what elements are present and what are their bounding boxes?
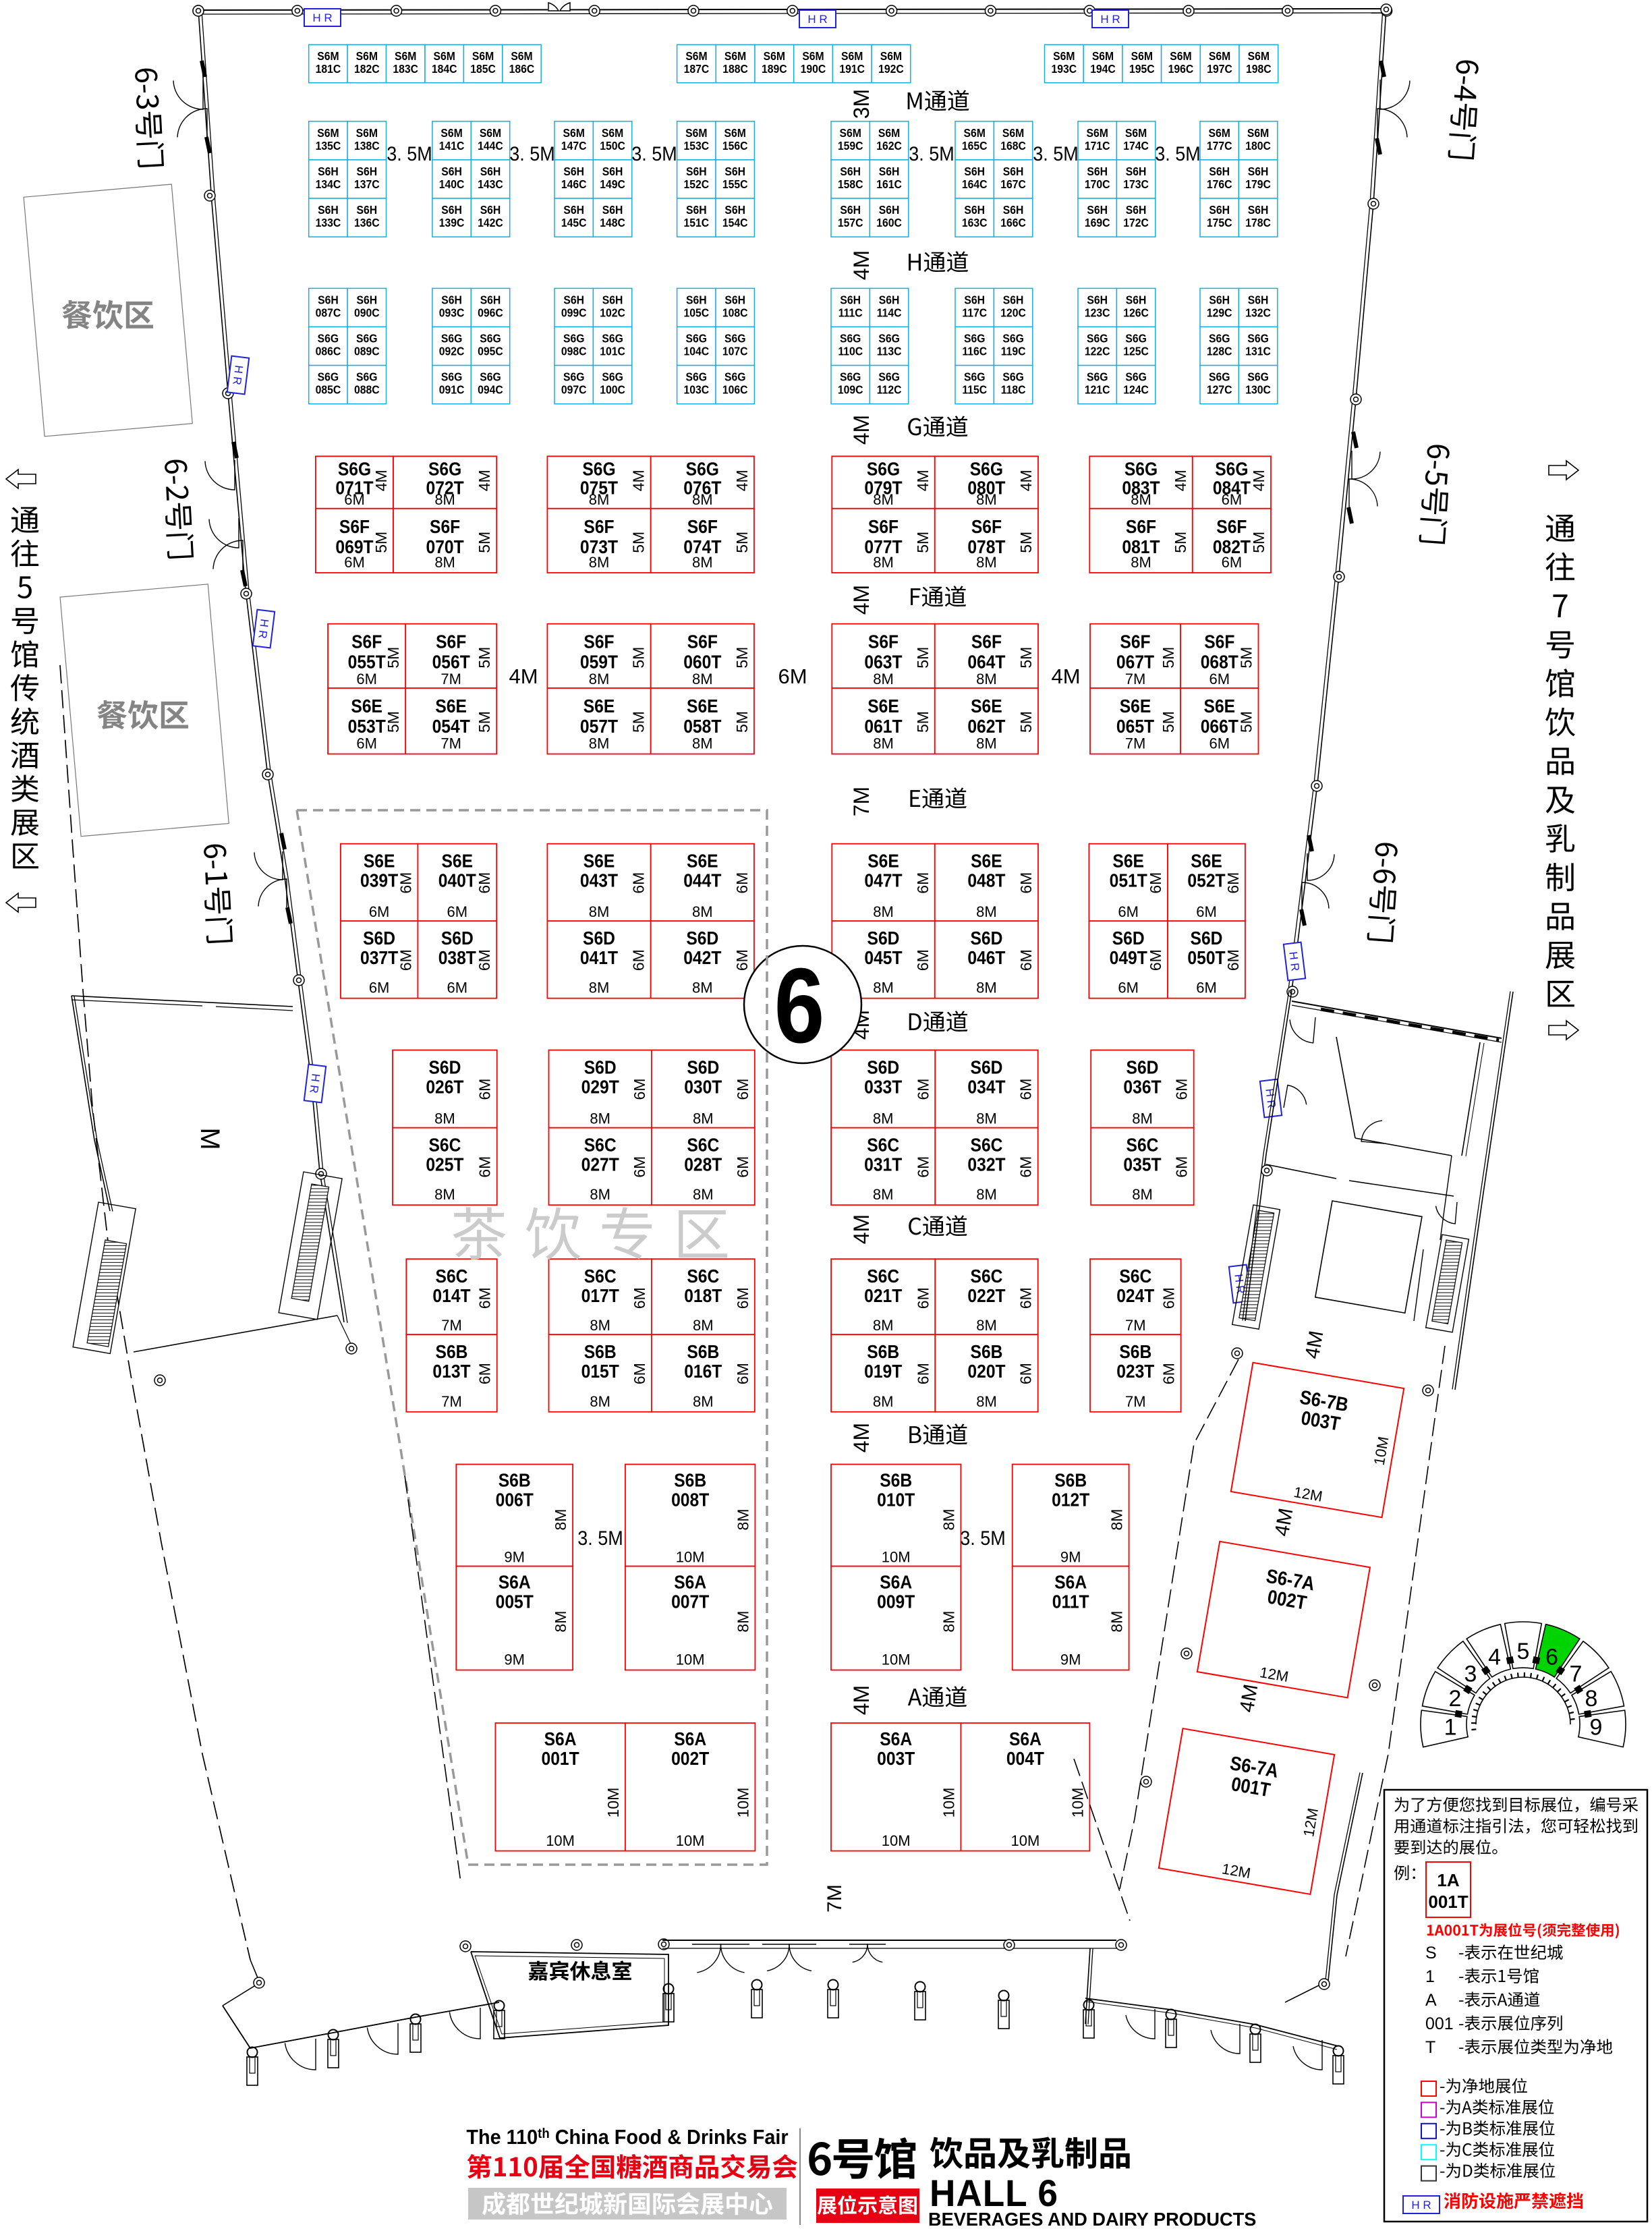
svg-text:S6E: S6E [687,850,718,872]
svg-text:8M: 8M [693,1317,714,1334]
svg-text:S6M: S6M [317,126,339,140]
svg-text:100C: 100C [600,383,625,397]
svg-text:8M: 8M [940,1509,957,1531]
svg-text:8M: 8M [589,554,610,571]
svg-text:S6H: S6H [602,203,623,217]
svg-text:146C: 146C [561,177,587,191]
svg-text:S6D: S6D [363,928,395,949]
svg-text:093C: 093C [439,306,465,320]
svg-text:190C: 190C [801,62,826,76]
svg-text:8M: 8M [873,491,894,508]
svg-text:S6H: S6H [480,293,501,307]
svg-text:S6D: S6D [584,1056,617,1078]
svg-text:6M: 6M [356,671,377,687]
svg-text:S6B: S6B [674,1469,706,1491]
svg-text:173C: 173C [1123,177,1149,191]
svg-text:S6H: S6H [563,203,584,217]
svg-text:The 110th China Food & Drinks: The 110th China Food & Drinks Fair [466,2126,788,2149]
svg-text:8M: 8M [589,903,610,920]
svg-text:7M: 7M [849,787,874,816]
svg-text:8M: 8M [1131,491,1151,508]
svg-text:S6H: S6H [1248,203,1269,217]
svg-text:10M: 10M [882,1651,911,1668]
svg-text:S6F: S6F [436,631,466,652]
svg-text:S6G: S6G [356,370,377,384]
svg-text:133C: 133C [316,216,341,229]
svg-text:5M: 5M [1160,647,1177,669]
svg-text:S6F: S6F [1216,515,1247,537]
svg-text:S6B: S6B [584,1341,617,1363]
svg-text:S6H: S6H [357,203,378,217]
svg-text:195C: 195C [1129,62,1155,76]
svg-text:8M: 8M [940,1611,957,1633]
svg-text:1: 1 [1425,1967,1435,1986]
svg-text:S6E: S6E [364,850,395,872]
svg-text:4M: 4M [849,250,874,280]
svg-text:8M: 8M [976,903,997,920]
svg-text:4M: 4M [849,1214,874,1244]
svg-text:068T: 068T [1201,651,1238,673]
svg-text:S6G: S6G [1247,370,1268,384]
svg-text:8M: 8M [1108,1509,1126,1531]
svg-text:S6H: S6H [879,165,900,178]
svg-text:8M: 8M [590,1186,610,1203]
svg-text:116C: 116C [962,345,987,358]
svg-text:S6D: S6D [970,928,1002,949]
svg-text:144C: 144C [478,139,503,152]
svg-text:H R: H R [256,618,270,639]
svg-text:099C: 099C [561,306,587,320]
svg-text:128C: 128C [1207,345,1232,358]
svg-text:S6M: S6M [685,49,707,63]
svg-text:6M: 6M [631,1287,648,1309]
svg-text:123C: 123C [1085,306,1110,320]
svg-text:6M: 6M [914,949,932,971]
svg-text:S6A: S6A [880,1571,912,1593]
svg-text:S6M: S6M [356,49,378,63]
svg-text:5M: 5M [384,711,402,733]
svg-text:6M: 6M [1173,1079,1191,1100]
svg-text:8M: 8M [1132,1186,1153,1203]
svg-text:106C: 106C [722,383,748,397]
svg-text:4M: 4M [849,1685,874,1715]
svg-text:S6H: S6H [724,293,745,307]
svg-text:5M: 5M [372,532,390,553]
svg-text:S6E: S6E [971,850,1002,872]
svg-text:5M: 5M [476,647,493,669]
svg-text:8M: 8M [976,1393,997,1410]
svg-text:154C: 154C [722,216,748,229]
svg-text:158C: 158C [838,177,863,191]
svg-text:5M: 5M [476,532,493,553]
svg-text:196C: 196C [1168,62,1194,76]
svg-text:8M: 8M [589,671,610,687]
svg-text:10M: 10M [734,1788,751,1818]
svg-text:8M: 8M [976,554,997,571]
svg-text:S6G: S6G [602,332,623,345]
svg-text:S6C: S6C [867,1266,899,1287]
svg-text:S6H: S6H [686,165,707,178]
svg-text:121C: 121C [1085,383,1110,397]
svg-text:094C: 094C [478,383,503,397]
svg-text:8M: 8M [693,1110,714,1127]
svg-text:055T: 055T [348,651,386,673]
svg-text:S6H: S6H [964,203,985,217]
svg-text:S6F: S6F [687,631,718,652]
svg-text:007T: 007T [671,1591,709,1612]
svg-text:174C: 174C [1123,139,1149,152]
svg-text:018T: 018T [684,1285,722,1307]
svg-text:S6E: S6E [1191,850,1222,872]
svg-text:7M: 7M [441,1393,462,1410]
svg-text:S6H: S6H [840,165,861,178]
svg-text:143C: 143C [478,177,503,191]
svg-text:S6E: S6E [435,696,467,717]
svg-text:064T: 064T [967,651,1005,673]
svg-text:8M: 8M [434,1186,455,1203]
svg-text:112C: 112C [877,383,902,397]
svg-text:6M: 6M [1017,872,1035,894]
svg-text:150C: 150C [600,139,625,152]
svg-text:8M: 8M [976,1186,997,1203]
svg-text:145C: 145C [561,216,587,229]
svg-text:8M: 8M [734,1611,751,1633]
svg-text:3. 5M: 3. 5M [1033,143,1078,166]
svg-text:3M: 3M [849,89,874,119]
svg-text:6M: 6M [1017,949,1035,971]
svg-text:10M: 10M [1069,1788,1086,1818]
svg-text:131C: 131C [1245,345,1271,358]
svg-text:3. 5M: 3. 5M [577,1527,623,1550]
svg-text:S6H: S6H [1248,165,1269,178]
svg-text:S6G: S6G [602,370,623,384]
svg-text:8M: 8M [976,735,997,752]
svg-text:3. 5M: 3. 5M [960,1527,1005,1550]
svg-text:S6E: S6E [442,850,474,872]
svg-text:S6C: S6C [687,1134,719,1156]
svg-text:011T: 011T [1052,1591,1089,1612]
svg-text:115C: 115C [962,383,987,397]
svg-text:8M: 8M [976,1317,997,1334]
svg-text:S6M: S6M [395,49,416,63]
svg-text:4M: 4M [1017,470,1035,491]
svg-text:162C: 162C [876,139,902,152]
svg-text:S6B: S6B [867,1341,899,1363]
svg-text:S6D: S6D [441,928,474,949]
svg-text:014T: 014T [432,1285,470,1307]
svg-text:139C: 139C [439,216,465,229]
svg-text:054T: 054T [432,716,470,737]
svg-text:S6F: S6F [583,631,614,652]
svg-text:6: 6 [774,947,825,1066]
svg-text:4M: 4M [1051,665,1080,688]
svg-text:6M: 6M [476,1287,494,1309]
svg-text:1A: 1A [1437,1870,1459,1890]
svg-text:063T: 063T [864,651,902,673]
svg-text:S6M: S6M [840,126,861,140]
svg-text:S6F: S6F [1204,631,1234,652]
svg-text:5M: 5M [914,647,932,669]
svg-text:10M: 10M [604,1788,622,1818]
svg-text:8M: 8M [552,1611,569,1633]
svg-text:6M: 6M [914,1079,932,1100]
svg-text:S6H: S6H [964,165,985,178]
svg-text:030T: 030T [684,1076,722,1098]
svg-text:7M: 7M [440,735,461,752]
svg-text:BEVERAGES AND DAIRY PRODUCTS: BEVERAGES AND DAIRY PRODUCTS [928,2209,1256,2230]
svg-text:024T: 024T [1116,1285,1154,1307]
svg-text:6M: 6M [1222,491,1243,508]
svg-text:S6M: S6M [841,49,863,63]
svg-text:3. 5M: 3. 5M [909,143,954,166]
svg-text:5M: 5M [1238,711,1255,733]
svg-text:042T: 042T [683,947,721,969]
svg-text:6M: 6M [734,1156,751,1178]
svg-text:8M: 8M [873,671,894,687]
svg-text:6M: 6M [1118,903,1139,920]
svg-text:5M: 5M [733,532,751,553]
svg-text:6M: 6M [476,1363,494,1384]
svg-text:H R: H R [312,11,332,24]
svg-text:096C: 096C [478,306,503,320]
svg-text:5M: 5M [1250,532,1268,553]
svg-text:S6F: S6F [687,515,718,537]
svg-text:T: T [1425,2038,1435,2057]
svg-text:S6C: S6C [584,1266,617,1287]
svg-text:S6F: S6F [971,515,1002,537]
svg-text:8M: 8M [589,735,610,752]
svg-text:S6G: S6G [724,370,745,384]
svg-text:S6F: S6F [868,631,899,652]
svg-text:S6C: S6C [867,1134,899,1156]
svg-text:091C: 091C [439,383,465,397]
svg-text:8M: 8M [693,1186,714,1203]
svg-text:S6F: S6F [430,515,460,537]
svg-text:166C: 166C [1000,216,1026,229]
svg-text:S6G: S6G [964,370,985,384]
svg-text:5M: 5M [733,647,751,669]
svg-text:6M: 6M [631,1156,648,1178]
svg-text:9: 9 [1589,1715,1602,1741]
svg-text:049T: 049T [1110,947,1147,969]
svg-text:4: 4 [1488,1645,1501,1670]
svg-text:001T: 001T [1428,1892,1468,1912]
svg-text:6M: 6M [1209,735,1230,752]
svg-text:S6H: S6H [441,293,462,307]
svg-text:S6H: S6H [1087,165,1108,178]
svg-text:6M: 6M [1017,1363,1035,1384]
svg-text:S6G: S6G [318,370,339,384]
svg-text:5M: 5M [1238,647,1255,669]
svg-text:S6F: S6F [868,515,899,537]
svg-text:156C: 156C [722,139,748,152]
svg-text:S6H: S6H [318,203,339,217]
svg-text:S6C: S6C [1119,1266,1151,1287]
svg-text:7M: 7M [1125,735,1146,752]
svg-text:3. 5M: 3. 5M [387,143,432,166]
svg-text:8M: 8M [692,671,713,687]
svg-text:036T: 036T [1123,1076,1161,1098]
svg-text:S6H: S6H [840,203,861,217]
svg-text:7M: 7M [441,1317,462,1334]
svg-text:157C: 157C [838,216,863,229]
svg-text:148C: 148C [600,216,625,229]
svg-text:8M: 8M [692,980,713,996]
svg-text:147C: 147C [561,139,587,152]
svg-text:6M: 6M [356,735,377,752]
svg-text:8M: 8M [873,1110,894,1127]
svg-text:2: 2 [1448,1686,1461,1712]
svg-text:037T: 037T [360,947,398,969]
svg-text:6M: 6M [1147,949,1164,971]
svg-text:S6G: S6G [964,332,985,345]
svg-text:S6G: S6G [1002,370,1023,384]
svg-text:S6H: S6H [1087,293,1108,307]
svg-text:6M: 6M [1017,1079,1035,1100]
svg-text:S6G: S6G [1002,332,1023,345]
svg-text:S6G: S6G [1125,332,1146,345]
svg-text:102C: 102C [600,306,625,320]
svg-text:10M: 10M [882,1549,911,1566]
svg-text:6M: 6M [476,949,493,971]
svg-text:5M: 5M [1017,711,1035,733]
svg-text:S6H: S6H [441,165,462,178]
svg-text:095C: 095C [478,345,503,358]
svg-text:S6M: S6M [1131,49,1153,63]
svg-text:114C: 114C [877,306,902,320]
svg-text:5M: 5M [630,532,648,553]
svg-text:8M: 8M [873,1393,894,1410]
svg-text:129C: 129C [1207,306,1232,320]
svg-text:193C: 193C [1051,62,1077,76]
svg-text:7M: 7M [1125,671,1146,687]
svg-text:S6H: S6H [1126,165,1147,178]
svg-text:S6H: S6H [686,293,707,307]
svg-text:126C: 126C [1123,306,1149,320]
svg-text:S6G: S6G [840,332,861,345]
svg-text:152C: 152C [683,177,709,191]
svg-text:010T: 010T [877,1489,915,1510]
svg-text:5M: 5M [1172,532,1189,553]
svg-text:067T: 067T [1116,651,1154,673]
svg-text:S6G: S6G [441,370,462,384]
svg-text:S6E: S6E [1120,696,1151,717]
svg-text:108C: 108C [722,306,748,320]
svg-text:5M: 5M [1160,711,1177,733]
svg-text:8M: 8M [734,1509,751,1531]
svg-text:027T: 027T [581,1154,619,1175]
svg-text:S6M: S6M [480,126,501,140]
svg-text:S6H: S6H [1126,293,1147,307]
svg-text:S6G: S6G [1209,332,1230,345]
svg-text:164C: 164C [962,177,988,191]
svg-text:S6H: S6H [480,203,501,217]
svg-text:005T: 005T [496,1591,534,1612]
svg-text:6M: 6M [1017,1287,1035,1309]
svg-text:155C: 155C [722,177,748,191]
svg-text:113C: 113C [877,345,902,358]
svg-text:020T: 020T [967,1361,1005,1382]
svg-text:S6E: S6E [971,696,1002,717]
svg-text:040T: 040T [438,870,476,891]
svg-text:S6M: S6M [472,49,494,63]
svg-text:S6F: S6F [1126,515,1156,537]
svg-text:6M: 6M [1118,980,1139,996]
svg-text:S6E: S6E [583,850,615,872]
svg-text:008T: 008T [671,1489,709,1510]
svg-text:7: 7 [1570,1661,1583,1687]
svg-text:H R: H R [1286,951,1301,971]
svg-text:056T: 056T [432,651,470,673]
svg-text:S6D: S6D [1191,928,1223,949]
svg-text:S6H: S6H [1087,203,1108,217]
svg-text:S6G: S6G [1247,332,1268,345]
svg-text:S6F: S6F [1120,631,1150,652]
svg-text:105C: 105C [683,306,709,320]
svg-text:132C: 132C [1245,306,1271,320]
svg-text:136C: 136C [354,216,380,229]
svg-text:6M: 6M [630,872,648,894]
svg-text:046T: 046T [967,947,1005,969]
svg-text:S6B: S6B [1119,1341,1151,1363]
svg-text:047T: 047T [864,870,902,891]
svg-text:10M: 10M [546,1832,575,1849]
svg-text:H R: H R [230,364,245,385]
svg-text:S6C: S6C [584,1134,617,1156]
svg-text:135C: 135C [316,139,341,152]
svg-text:098C: 098C [561,345,587,358]
svg-text:149C: 149C [600,177,625,191]
svg-text:170C: 170C [1085,177,1110,191]
svg-text:117C: 117C [962,306,987,320]
svg-text:059T: 059T [580,651,618,673]
svg-text:M: M [195,1127,225,1150]
svg-text:S6E: S6E [583,696,615,717]
svg-text:6M: 6M [476,1156,494,1178]
svg-text:003T: 003T [877,1748,915,1770]
svg-text:4M: 4M [849,585,874,615]
svg-text:7M: 7M [440,671,461,687]
svg-text:5M: 5M [914,532,932,553]
svg-text:085C: 085C [316,383,341,397]
svg-text:10M: 10M [1011,1832,1040,1849]
svg-text:S6H: S6H [964,293,985,307]
svg-text:S6H: S6H [1209,165,1230,178]
svg-text:S6F: S6F [339,515,370,537]
svg-text:3. 5M: 3. 5M [631,143,677,166]
svg-text:S6M: S6M [764,49,785,63]
svg-text:110C: 110C [838,345,863,358]
svg-text:006T: 006T [496,1489,534,1510]
svg-text:6M: 6M [1017,1156,1035,1178]
svg-text:171C: 171C [1085,139,1110,152]
svg-text:060T: 060T [683,651,721,673]
svg-text:8M: 8M [873,554,894,571]
svg-text:8M: 8M [434,491,455,508]
svg-text:S6B: S6B [436,1341,468,1363]
svg-text:S6H: S6H [357,293,378,307]
svg-text:198C: 198C [1246,62,1272,76]
svg-text:S6B: S6B [687,1341,719,1363]
svg-text:177C: 177C [1207,139,1232,152]
svg-text:S6G: S6G [686,332,707,345]
svg-text:S6H: S6H [441,203,462,217]
svg-text:134C: 134C [316,177,341,191]
svg-text:033T: 033T [864,1076,902,1098]
svg-text:088C: 088C [354,383,380,397]
svg-text:S6G: S6G [1087,332,1108,345]
svg-text:058T: 058T [683,716,721,737]
